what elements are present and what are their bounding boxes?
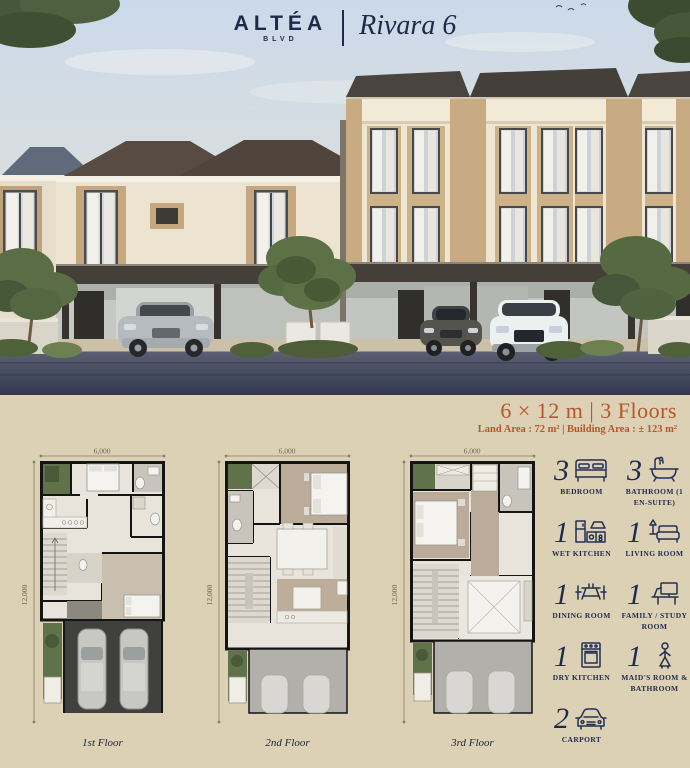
floorplan-1st-floor: 6,000 12,000: [14, 447, 182, 749]
hero-render: ALTÉA BLVD Rivara 6: [0, 0, 690, 395]
plan3-height-dim: 12,000: [390, 584, 399, 605]
family-room-label: FAMILY / STUDY ROOM: [619, 611, 690, 633]
specs-bar: 6 × 12 m | 3 Floors Land Area : 72 m² | …: [478, 399, 677, 435]
legend-item-bedroom: 3 BEDROOM: [546, 452, 617, 514]
wet-kitchen-label: WET KITCHEN: [552, 549, 611, 560]
specs-headline: 6 × 12 m | 3 Floors: [478, 399, 677, 423]
plan1-height-dim: 12,000: [20, 584, 29, 605]
legend-item-maids-room: 1 MAID'S ROOM & BATHROOM: [619, 638, 690, 700]
plan2-width-dim: 6,000: [279, 447, 296, 456]
legend-item-family-study-room: 1 FAMILY / STUDY ROOM: [619, 576, 690, 638]
brand-divider: [342, 10, 344, 46]
brand-block: ALTÉA BLVD: [234, 13, 327, 43]
specs-details: Land Area : 72 m² | Building Area : ± 12…: [478, 424, 677, 435]
plan3-width-dim: 6,000: [464, 447, 481, 456]
bed-icon: [573, 454, 609, 484]
dry-kitchen-count: 1: [554, 643, 569, 670]
dining-room-label: DINING ROOM: [552, 611, 610, 622]
legend-item-wet-kitchen: 1 WET KITCHEN: [546, 514, 617, 576]
dining-table-icon: [573, 578, 609, 608]
floorplan-2-drawing: 6,000 12,000: [199, 447, 367, 735]
family-room-count: 1: [627, 581, 642, 608]
series-name: Rivara 6: [359, 12, 456, 44]
car-icon: [573, 702, 609, 732]
plan2-caption: 2nd Floor: [225, 737, 350, 749]
maids-room-count: 1: [627, 643, 642, 670]
plan1-width-dim: 6,000: [94, 447, 111, 456]
plan1-caption: 1st Floor: [40, 737, 165, 749]
living-room-count: 1: [627, 519, 642, 546]
floorplan-1-drawing: 6,000 12,000: [14, 447, 182, 735]
desk-icon: [646, 578, 682, 608]
legend-item-bathroom: 3 BATHROOM (1 EN-SUITE): [619, 452, 690, 514]
legend-item-dry-kitchen: 1 DRY KITCHEN: [546, 638, 617, 700]
brochure-page: ALTÉA BLVD Rivara 6 6 × 12 m | 3 Floors …: [0, 0, 690, 768]
kitchen-icon: [573, 516, 609, 546]
floorplan-2nd-floor: 6,000 12,000: [199, 447, 367, 749]
plan2-height-dim: 12,000: [205, 584, 214, 605]
carport-count: 2: [554, 705, 569, 732]
bedroom-count: 3: [554, 457, 569, 484]
maid-icon: [646, 640, 682, 670]
maids-room-label: MAID'S ROOM & BATHROOM: [619, 673, 690, 695]
brand-sub: BLVD: [234, 36, 327, 43]
oven-icon: [573, 640, 609, 670]
floorplan-3rd-floor: 6,000 12,000: [384, 447, 552, 749]
bathroom-count: 3: [627, 457, 642, 484]
sofa-icon: [646, 516, 682, 546]
legend-item-carport: 2 CARPORT: [546, 700, 617, 762]
plan3-caption: 3rd Floor: [410, 737, 535, 749]
bedroom-label: BEDROOM: [560, 487, 602, 498]
legend-item-living-room: 1 LIVING ROOM: [619, 514, 690, 576]
brand-name: ALTÉA: [234, 13, 327, 34]
dining-room-count: 1: [554, 581, 569, 608]
building-render-illustration: [0, 0, 690, 395]
dry-kitchen-label: DRY KITCHEN: [553, 673, 610, 684]
carport-label: CARPORT: [562, 735, 602, 746]
living-room-label: LIVING ROOM: [626, 549, 684, 560]
floorplan-3-drawing: 6,000 12,000: [384, 447, 552, 735]
wet-kitchen-count: 1: [554, 519, 569, 546]
bathroom-label: BATHROOM (1 EN-SUITE): [619, 487, 690, 509]
legend-item-dining-room: 1 DINING ROOM: [546, 576, 617, 638]
bathtub-icon: [646, 454, 682, 484]
brand-lockup: ALTÉA BLVD Rivara 6: [0, 10, 690, 46]
facility-legend: 3 BEDROOM 3: [546, 452, 690, 762]
